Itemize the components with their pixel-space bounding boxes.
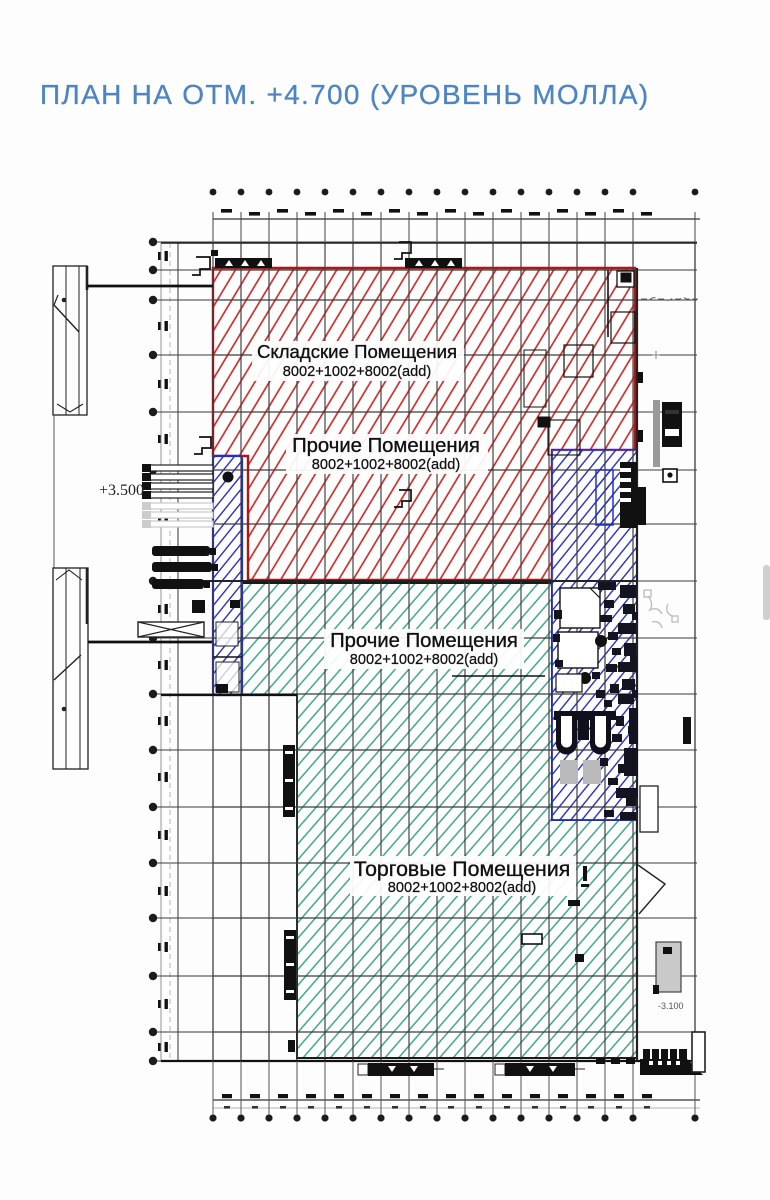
svg-text:8002+1002+8002(add): 8002+1002+8002(add): [350, 652, 499, 668]
svg-text:Торговые Помещения: Торговые Помещения: [354, 857, 571, 881]
svg-text:8002+1002+8002(add): 8002+1002+8002(add): [388, 880, 537, 896]
svg-text:ПЛАН НА ОТМ. +4.700 (УРОВЕНЬ М: ПЛАН НА ОТМ. +4.700 (УРОВЕНЬ МОЛЛА): [40, 79, 650, 110]
svg-text:Прочие Помещения: Прочие Помещения: [292, 435, 480, 457]
svg-text:Складские Помещения: Складские Помещения: [257, 341, 457, 362]
svg-text:Прочие Помещения: Прочие Помещения: [330, 630, 518, 652]
svg-text:+3.500: +3.500: [99, 482, 144, 499]
svg-text:-3.100: -3.100: [658, 1001, 684, 1011]
svg-text:8002+1002+8002(add): 8002+1002+8002(add): [312, 457, 461, 473]
svg-text:8002+1002+8002(add): 8002+1002+8002(add): [283, 364, 432, 380]
